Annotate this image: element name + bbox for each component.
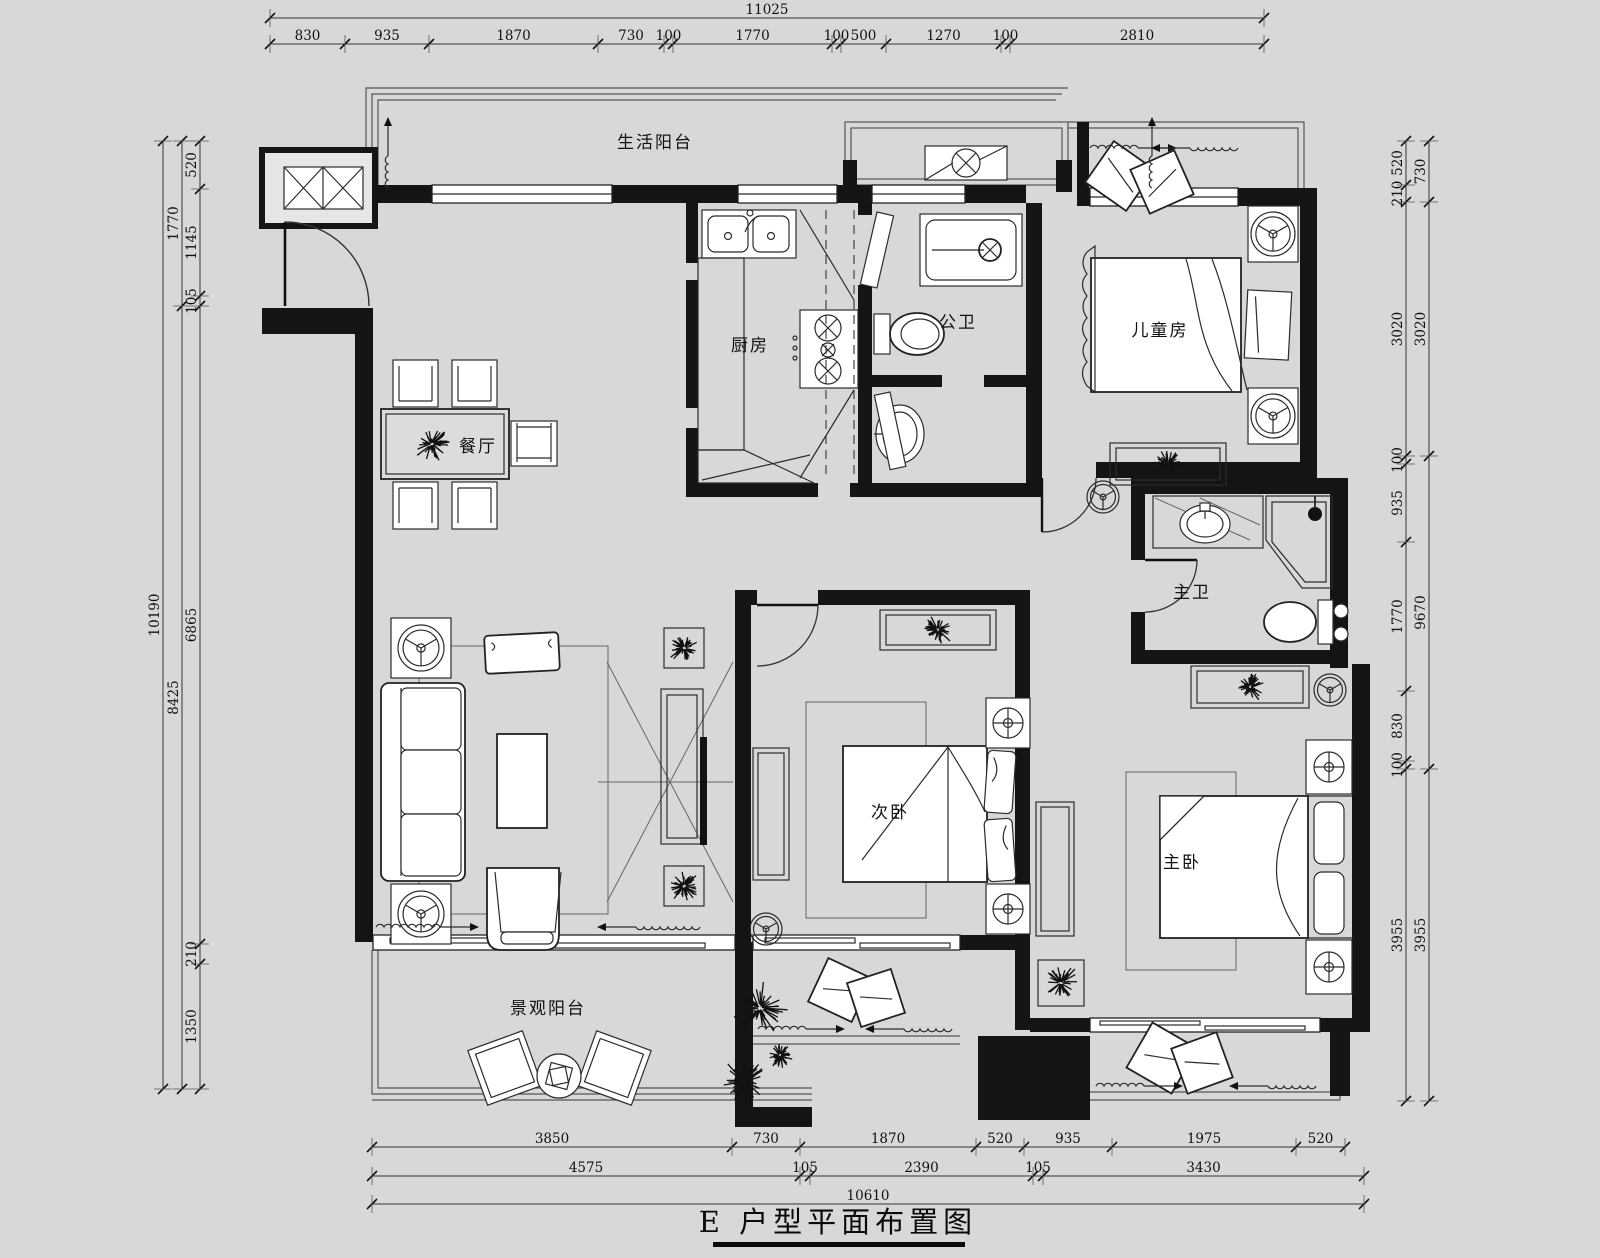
dim-label: 830	[1390, 713, 1406, 739]
dim-label: 10190	[147, 594, 163, 637]
plant-icon	[671, 637, 697, 660]
dim-label: 1270	[926, 28, 960, 44]
dim-label: 730	[1413, 159, 1429, 185]
room-label-view-balcony: 景观阳台	[510, 999, 586, 1019]
plant-icon	[1048, 967, 1077, 996]
tv	[700, 737, 707, 845]
balcony-table	[537, 1054, 581, 1098]
crosshair-icon	[1314, 752, 1344, 782]
curtain-coil-icon	[384, 117, 392, 188]
plant-box	[664, 628, 704, 668]
dim-label: 3850	[535, 1131, 569, 1147]
second-cabinet	[880, 610, 996, 650]
floor-plan-drawing: 1102583093518707301001770100500127010028…	[0, 0, 1600, 1258]
dim-label: 4575	[569, 1160, 603, 1176]
dim-label: 1145	[184, 225, 200, 259]
dim-label: 100	[656, 28, 682, 44]
master-bath	[1145, 496, 1348, 644]
kids-door-arc	[1042, 478, 1096, 532]
dim-label: 830	[295, 28, 321, 44]
public-bath	[860, 212, 1022, 470]
window-bath	[872, 185, 965, 203]
kitchen	[698, 210, 858, 483]
dim-label: 100	[824, 28, 850, 44]
dim-label: 1350	[184, 1009, 200, 1043]
dim-label: 520	[1308, 1131, 1334, 1147]
washing-machine	[925, 146, 1007, 180]
dim-label: 3955	[1390, 918, 1406, 952]
dim-label: 210	[1390, 181, 1406, 207]
dim-label: 3955	[1413, 918, 1429, 952]
dim-label: 105	[792, 1160, 818, 1176]
view-balcony	[468, 1031, 651, 1105]
dim-label: 210	[184, 941, 200, 967]
curtain-coil-icon	[597, 923, 700, 931]
dim-label: 730	[753, 1131, 779, 1147]
dim-label: 935	[1055, 1131, 1081, 1147]
sheet-title: E 户型平面布置图	[699, 1205, 977, 1239]
dim-label: 105	[184, 288, 200, 314]
dim-label: 520	[1390, 150, 1406, 176]
dim-label: 1870	[871, 1131, 905, 1147]
curtain-coil-icon	[758, 1025, 845, 1033]
plant-icon	[1238, 674, 1263, 700]
kids-bed	[1083, 246, 1292, 392]
window-second-south	[753, 935, 960, 950]
shower	[1266, 496, 1332, 588]
dim-label: 520	[184, 152, 200, 178]
master-desk	[1036, 802, 1074, 936]
room-label-dining: 餐厅	[459, 437, 497, 457]
dim-label: 520	[987, 1131, 1013, 1147]
dining-chair	[393, 360, 438, 407]
curtain-coil-icon	[1229, 1082, 1316, 1090]
tv-feature-wall	[598, 628, 733, 906]
room-label-master-bedroom: 主卧	[1163, 853, 1201, 873]
kitchen-sink	[702, 210, 796, 258]
room-label-service-balcony: 生活阳台	[617, 133, 693, 153]
dim-label: 1770	[166, 206, 182, 240]
mbath-counter	[1153, 496, 1263, 548]
toilet-public	[874, 313, 944, 355]
second-door	[757, 605, 818, 666]
dim-label: 11025	[746, 2, 789, 18]
crosshair-icon	[1314, 952, 1344, 982]
fan-icon	[1314, 674, 1346, 706]
master-plant-box	[1038, 960, 1084, 1006]
window-entry	[738, 185, 837, 203]
second-desk	[753, 748, 789, 880]
second-bed	[843, 746, 1016, 882]
dining-chair	[511, 421, 557, 466]
fan-icon	[1087, 481, 1119, 513]
dim-label: 1770	[735, 28, 769, 44]
room-label-master-bath: 主卫	[1173, 583, 1211, 603]
dim-label: 935	[1390, 490, 1406, 516]
master-bay-pillows	[1126, 1022, 1232, 1093]
coffee-table	[497, 734, 547, 828]
dim-label: 2810	[1120, 28, 1154, 44]
dim-label: 100	[993, 28, 1019, 44]
floor-plan-sheet: 1102583093518707301001770100500127010028…	[0, 0, 1600, 1258]
dim-label: 730	[618, 28, 644, 44]
sofa	[381, 683, 465, 881]
curtain-coil-icon	[1151, 144, 1238, 152]
room-label-public-bath: 公卫	[939, 313, 977, 333]
dim-label: 6865	[184, 608, 200, 642]
plant-icon	[925, 617, 950, 644]
dim-label: 9670	[1413, 595, 1429, 629]
fan-icon	[750, 913, 782, 945]
room-label-kids-room: 儿童房	[1132, 321, 1189, 341]
lounge-pillow	[484, 632, 560, 674]
dim-label: 3430	[1186, 1160, 1220, 1176]
plant-icon	[770, 1044, 792, 1068]
kitchen-counter-corner	[698, 450, 814, 483]
dim-label: 2390	[904, 1160, 938, 1176]
dim-label: 500	[851, 28, 877, 44]
armchair	[487, 868, 561, 950]
dim-label: 3020	[1390, 312, 1406, 346]
title-underline	[713, 1242, 965, 1247]
dim-label: 935	[374, 28, 400, 44]
curtain-coil-icon	[865, 1025, 952, 1033]
room-label-second-bedroom: 次卧	[871, 803, 909, 823]
dim-label: 100	[1390, 447, 1406, 473]
dim-label: 3020	[1413, 312, 1429, 346]
dim-label: 105	[1025, 1160, 1051, 1176]
dining-chair	[393, 482, 438, 529]
dim-label: 10610	[847, 1188, 890, 1204]
window-master-bay	[1090, 1018, 1320, 1032]
crosshair-icon	[993, 708, 1023, 738]
dim-label: 1870	[496, 28, 530, 44]
dining-chair	[452, 360, 497, 407]
master-cabinet	[1191, 666, 1309, 708]
plant-box	[664, 866, 704, 906]
bath-door-leaf	[860, 212, 893, 288]
room-label-kitchen: 厨房	[731, 336, 769, 356]
window-living-balcony	[432, 185, 612, 203]
entry	[262, 150, 375, 306]
dim-label: 100	[1390, 752, 1406, 778]
entry-closet	[284, 167, 363, 209]
crosshair-icon	[993, 894, 1023, 924]
second-bay-pillows	[808, 958, 905, 1027]
dim-label: 1975	[1187, 1131, 1221, 1147]
bathtub	[920, 214, 1022, 286]
entry-door	[285, 222, 369, 306]
dim-label: 8425	[166, 680, 182, 714]
dining-chair	[452, 482, 497, 529]
dim-label: 1770	[1390, 599, 1406, 633]
plant-icon	[671, 872, 696, 900]
